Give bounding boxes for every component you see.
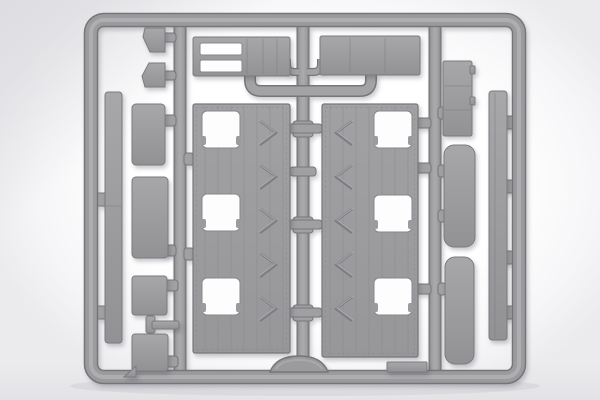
louvered-box-part bbox=[443, 61, 475, 136]
stacked-rect-a-part bbox=[132, 104, 165, 165]
rounded-pad-upper-part bbox=[444, 145, 475, 247]
floor-panel-left bbox=[193, 104, 290, 353]
long-bar-right-part bbox=[489, 91, 507, 340]
sprue-photo bbox=[0, 0, 600, 400]
wedge-upper-part bbox=[143, 28, 165, 52]
wedge-lower-part bbox=[142, 63, 165, 87]
floor-panel-right bbox=[322, 104, 418, 357]
thin-strip-bottom-part bbox=[387, 362, 427, 372]
panel-right-hatches bbox=[373, 111, 413, 315]
photo-backdrop bbox=[0, 0, 600, 400]
runner-vertical-right bbox=[429, 20, 441, 378]
ladder-slot-top bbox=[200, 43, 242, 55]
ladder-slot-bottom bbox=[200, 60, 242, 72]
rounded-pad-lower-part bbox=[445, 257, 474, 364]
deck-part-top-right bbox=[320, 36, 420, 75]
long-strip-left-part bbox=[105, 92, 122, 343]
stacked-rect-b-part bbox=[132, 177, 168, 258]
panel-left-hatches bbox=[201, 111, 241, 315]
ladder-frame-part bbox=[193, 37, 290, 76]
stacked-rect-d-part bbox=[132, 334, 168, 371]
stacked-rect-c-part bbox=[132, 276, 167, 315]
frame-bottom-arch bbox=[270, 356, 328, 372]
